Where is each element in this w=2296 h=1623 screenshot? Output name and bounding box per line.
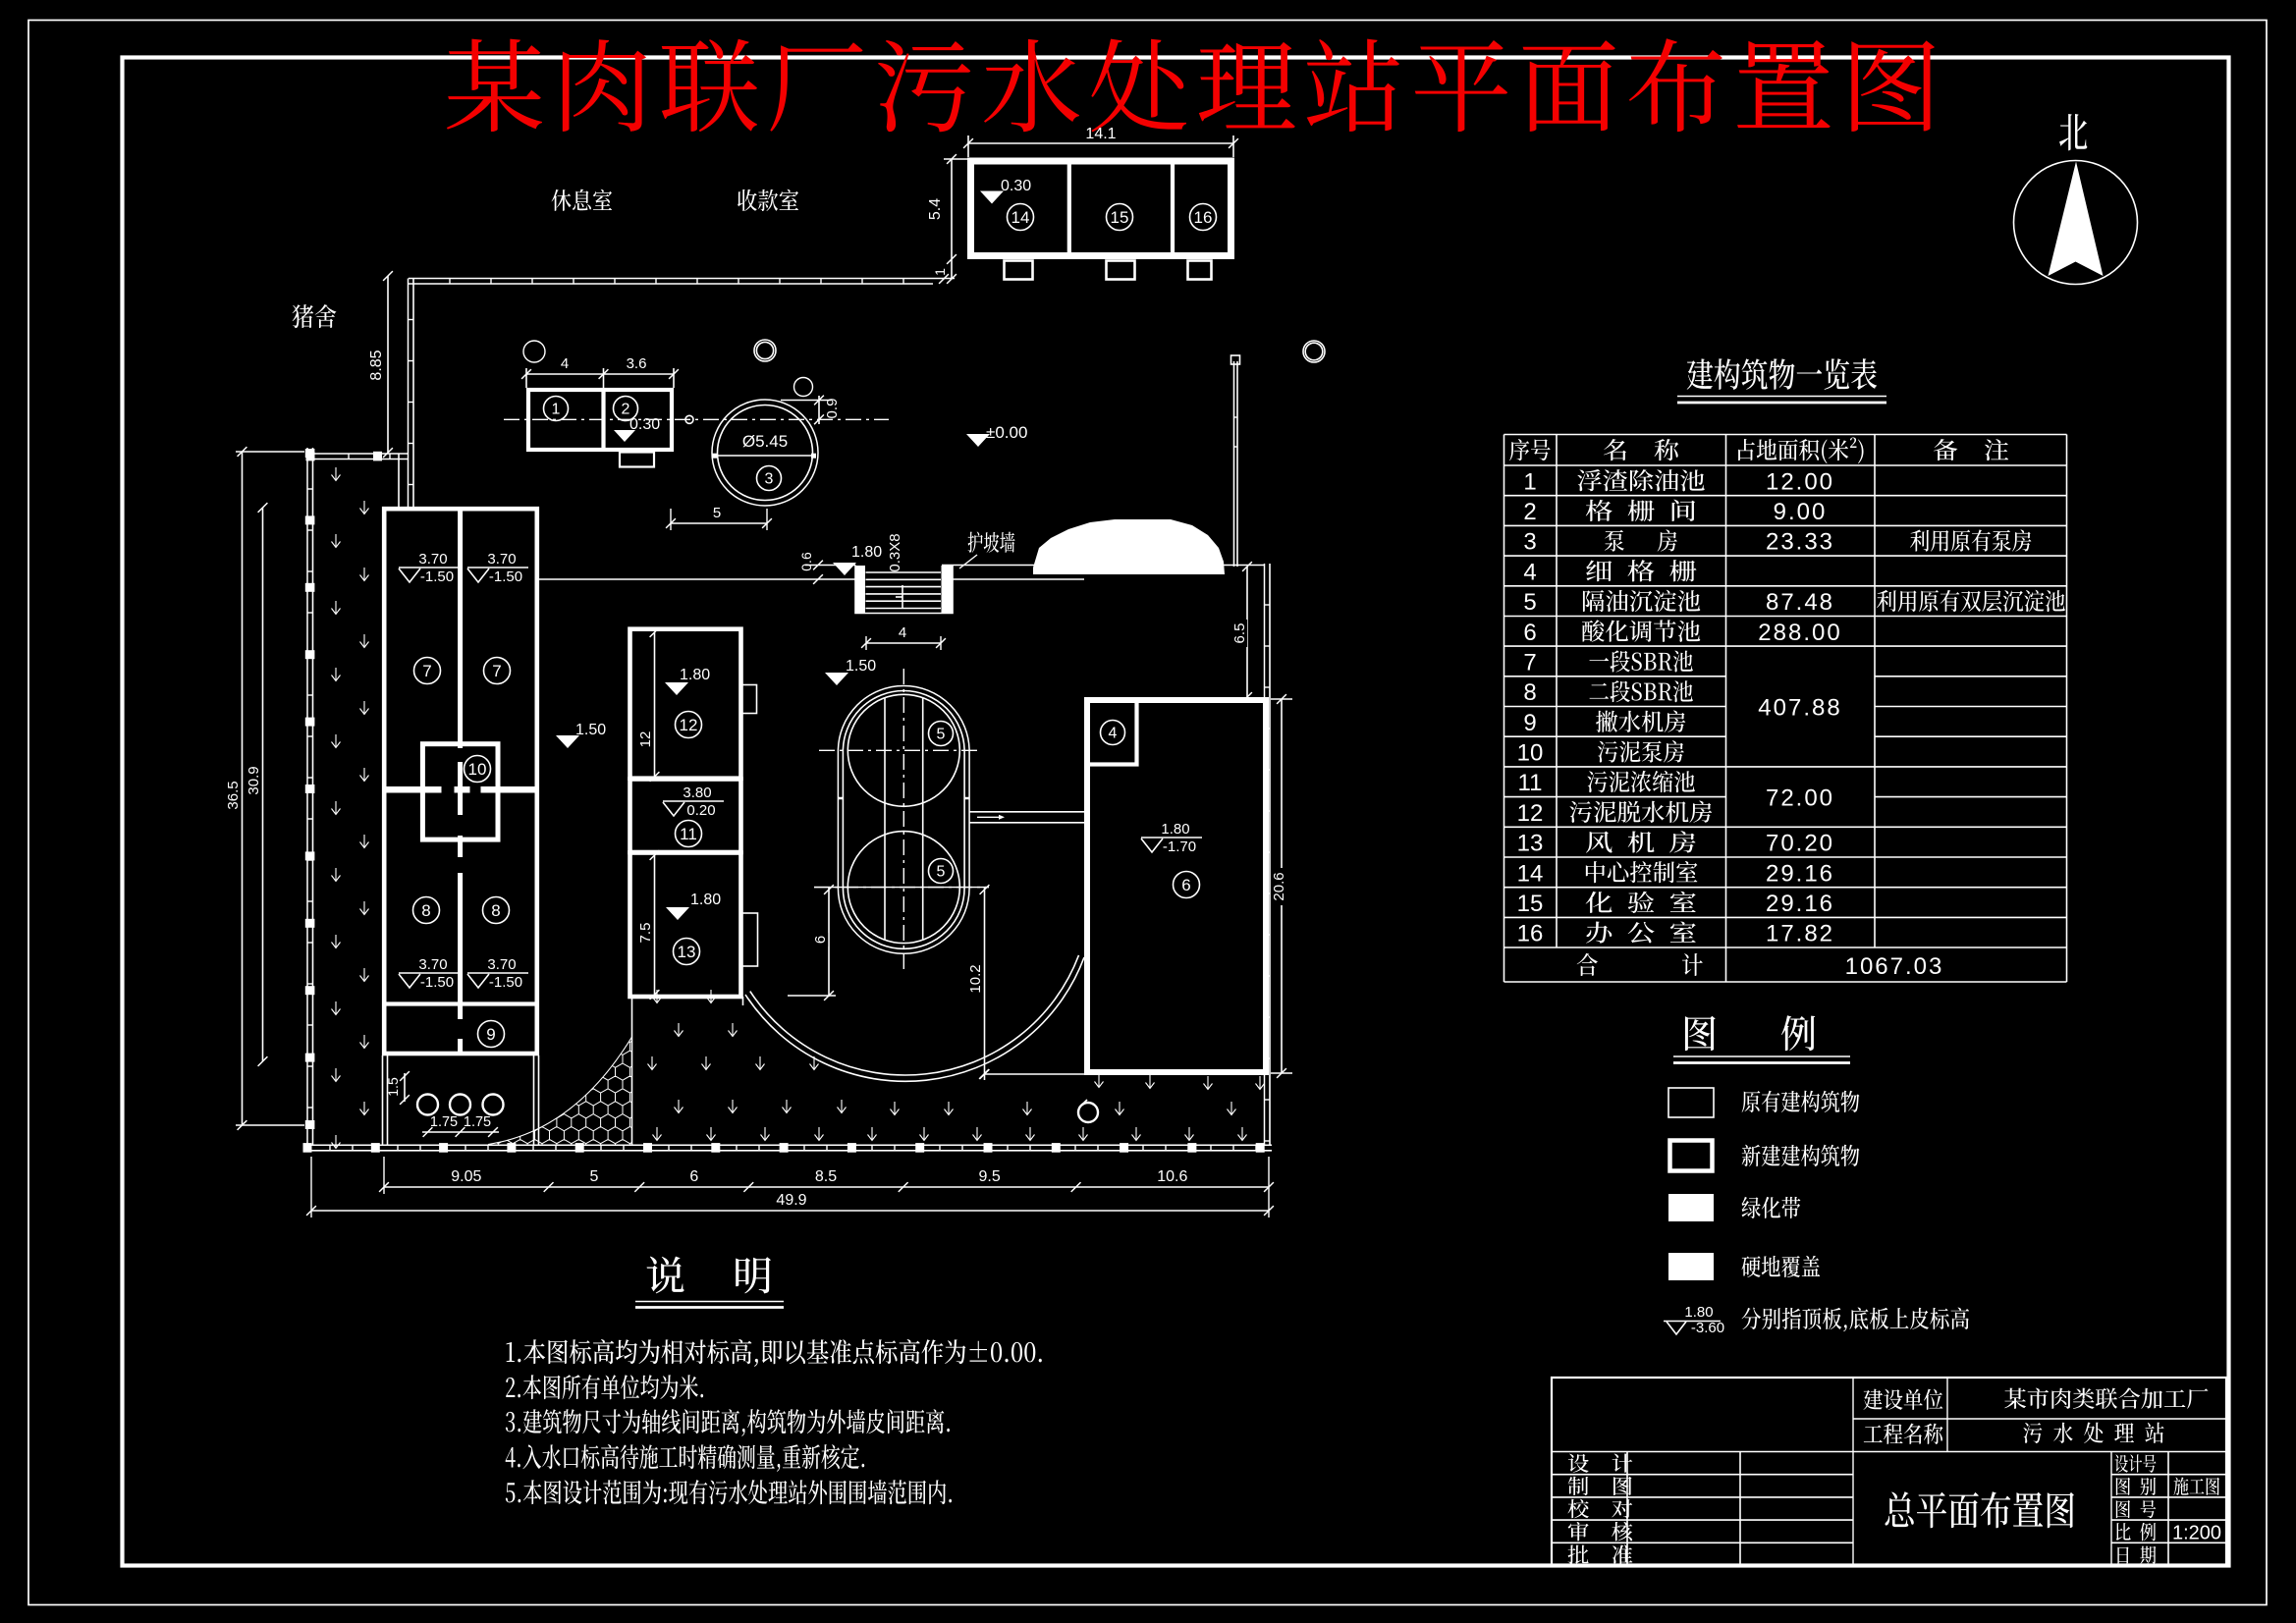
svg-text:1067.03: 1067.03	[1845, 953, 1944, 980]
svg-text:-1.50: -1.50	[489, 974, 522, 991]
svg-text:9.5: 9.5	[978, 1168, 1000, 1185]
svg-text:12: 12	[637, 731, 654, 748]
svg-text:0.6: 0.6	[798, 552, 814, 571]
svg-text:1.50: 1.50	[575, 722, 606, 738]
svg-text:1: 1	[552, 402, 561, 418]
svg-text:1.80: 1.80	[1684, 1304, 1713, 1321]
svg-text:20.6: 20.6	[1271, 872, 1287, 900]
svg-text:288.00: 288.00	[1758, 620, 1841, 646]
svg-text:1: 1	[1523, 468, 1536, 495]
svg-text:7.5: 7.5	[637, 923, 654, 944]
svg-text:5: 5	[937, 727, 946, 743]
svg-text:0.3X8: 0.3X8	[887, 533, 903, 571]
svg-text:29.16: 29.16	[1766, 860, 1834, 887]
svg-text:49.9: 49.9	[776, 1192, 806, 1209]
svg-text:6: 6	[1181, 876, 1190, 894]
svg-text:5.4: 5.4	[927, 198, 944, 220]
svg-text:10.6: 10.6	[1157, 1168, 1187, 1185]
svg-text:0.20: 0.20	[686, 802, 715, 819]
svg-text:11: 11	[1518, 770, 1543, 796]
svg-text:3: 3	[765, 471, 774, 488]
svg-text:9.00: 9.00	[1774, 499, 1828, 525]
svg-text:±0.00: ±0.00	[986, 423, 1027, 442]
svg-text:-1.50: -1.50	[420, 568, 454, 585]
svg-text:15: 15	[1111, 208, 1129, 227]
svg-text:Ø5.45: Ø5.45	[742, 432, 788, 451]
svg-text:6: 6	[812, 936, 829, 944]
svg-text:3.70: 3.70	[487, 956, 516, 973]
svg-text:-1.50: -1.50	[420, 974, 454, 991]
svg-text:8: 8	[491, 901, 500, 920]
svg-text:10: 10	[468, 760, 487, 779]
svg-text:15: 15	[1517, 891, 1544, 917]
svg-text:5: 5	[589, 1168, 598, 1185]
svg-text:14: 14	[1517, 860, 1544, 887]
svg-text:1.50: 1.50	[846, 658, 876, 675]
svg-text:9: 9	[486, 1025, 495, 1044]
svg-text:3.80: 3.80	[683, 784, 711, 801]
svg-text:16: 16	[1517, 921, 1544, 947]
svg-text:70.20: 70.20	[1766, 831, 1834, 857]
svg-text:0.30: 0.30	[1001, 178, 1031, 194]
svg-text:1.75: 1.75	[430, 1114, 458, 1130]
svg-text:1.80: 1.80	[1161, 821, 1189, 838]
svg-text:7: 7	[492, 662, 501, 680]
svg-text:1.80: 1.80	[690, 892, 721, 908]
svg-text:16: 16	[1194, 208, 1213, 227]
svg-text:-3.60: -3.60	[1691, 1320, 1724, 1336]
svg-text:13: 13	[1517, 831, 1544, 857]
svg-text:8.5: 8.5	[815, 1168, 837, 1185]
svg-text:10.2: 10.2	[967, 964, 984, 993]
svg-text:6: 6	[689, 1168, 698, 1185]
svg-text:29.16: 29.16	[1766, 891, 1834, 917]
svg-text:5: 5	[937, 864, 946, 881]
svg-text:-1.50: -1.50	[489, 568, 522, 585]
svg-text:4: 4	[1109, 726, 1118, 742]
svg-text:1: 1	[932, 268, 948, 276]
svg-text:87.48: 87.48	[1766, 589, 1834, 616]
svg-text:4: 4	[899, 624, 906, 641]
svg-text:12: 12	[680, 716, 698, 734]
svg-text:14: 14	[1011, 208, 1030, 227]
svg-text:4: 4	[1523, 559, 1536, 585]
svg-text:3: 3	[1523, 529, 1536, 556]
svg-text:13: 13	[678, 943, 696, 961]
svg-text:12.00: 12.00	[1766, 468, 1834, 495]
svg-text:8: 8	[1523, 679, 1536, 706]
svg-text:14.1: 14.1	[1085, 126, 1116, 142]
svg-text:5: 5	[713, 505, 721, 521]
svg-text:7: 7	[1523, 650, 1536, 676]
svg-text:8.85: 8.85	[368, 350, 385, 380]
svg-text:17.82: 17.82	[1766, 921, 1834, 947]
svg-text:3.70: 3.70	[487, 551, 516, 568]
svg-text:72.00: 72.00	[1766, 785, 1834, 812]
svg-text:4: 4	[561, 355, 569, 372]
svg-text:23.33: 23.33	[1766, 529, 1834, 556]
svg-text:11: 11	[680, 825, 697, 843]
svg-text:3.6: 3.6	[627, 355, 647, 372]
svg-text:6: 6	[1523, 620, 1536, 646]
svg-text:6.5: 6.5	[1231, 623, 1248, 644]
svg-text:1.75: 1.75	[464, 1114, 491, 1130]
svg-text:36.5: 36.5	[225, 781, 242, 809]
svg-text:10: 10	[1517, 740, 1544, 767]
svg-text:407.88: 407.88	[1758, 695, 1841, 722]
svg-text:8: 8	[421, 901, 430, 920]
svg-text:12: 12	[1517, 800, 1544, 827]
svg-text:9: 9	[1523, 710, 1536, 736]
svg-text:2: 2	[1523, 499, 1536, 525]
svg-text:3.70: 3.70	[418, 956, 447, 973]
svg-text:30.9: 30.9	[246, 766, 262, 794]
svg-text:1.5: 1.5	[385, 1077, 401, 1097]
svg-text:5: 5	[1523, 589, 1536, 616]
svg-text:1:200: 1:200	[2172, 1523, 2221, 1544]
svg-text:-1.70: -1.70	[1163, 839, 1196, 855]
svg-text:9.05: 9.05	[451, 1168, 481, 1185]
svg-text:1.80: 1.80	[851, 544, 882, 561]
svg-text:0.9: 0.9	[824, 399, 841, 419]
svg-text:1.80: 1.80	[680, 667, 710, 683]
svg-text:7: 7	[422, 662, 431, 680]
svg-text:3.70: 3.70	[418, 551, 447, 568]
